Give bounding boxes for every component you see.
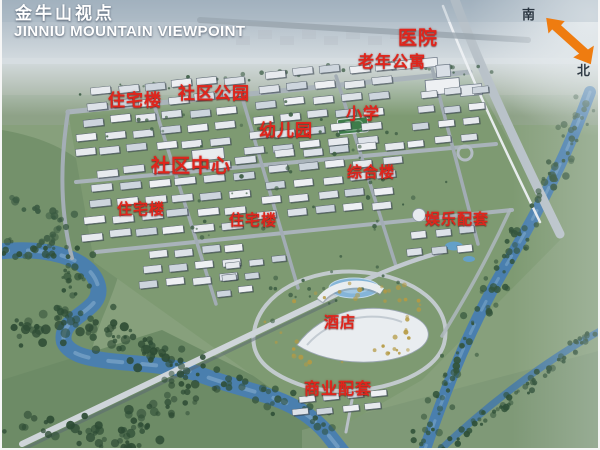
- map-label-kindergarten: 幼儿园: [259, 122, 313, 139]
- map-label-hotel: 酒店: [324, 315, 356, 330]
- map-label-hospital: 医院: [398, 29, 438, 48]
- map-label-complex-building: 综合楼: [347, 165, 395, 180]
- aerial-viewpoint-image: 金牛山视点 JINNIU MOUNTAIN VIEWPOINT 南 北 医院老年…: [0, 0, 600, 450]
- map-label-residential-3: 住宅楼: [229, 213, 277, 228]
- map-label-elderly-apartments: 老年公寓: [358, 55, 426, 71]
- compass: 南 北: [518, 2, 600, 92]
- map-label-entertainment: 娱乐配套: [425, 212, 489, 227]
- map-label-community-center: 社区中心: [151, 157, 231, 176]
- aerial-render-background: [2, 0, 600, 450]
- map-label-primary-school: 小学: [346, 107, 380, 123]
- compass-north-label: 北: [577, 64, 590, 77]
- page-title-zh: 金牛山视点: [15, 4, 115, 24]
- page-title-en: JINNIU MOUNTAIN VIEWPOINT: [14, 23, 245, 41]
- map-label-community-park: 社区公园: [178, 85, 250, 102]
- map-label-commercial: 商业配套: [304, 382, 372, 398]
- map-label-residential-1: 住宅楼: [108, 92, 162, 109]
- map-label-residential-2: 住宅楼: [117, 202, 165, 217]
- compass-south-label: 南: [522, 8, 535, 21]
